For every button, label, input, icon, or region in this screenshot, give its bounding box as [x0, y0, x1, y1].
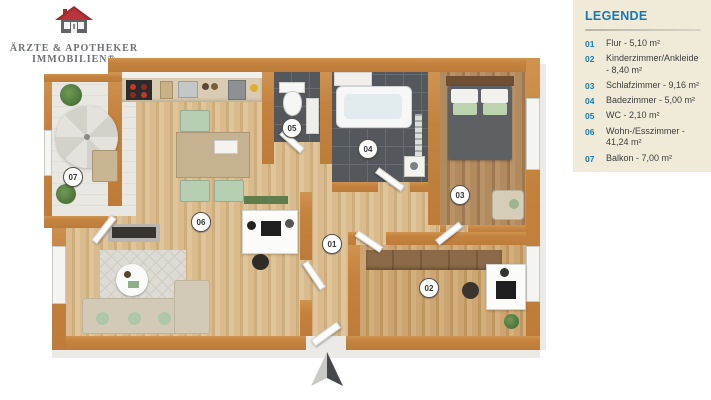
legend-item-06: 06 Wohn-/Esszimmer - 41,24 m²	[585, 126, 701, 149]
bed	[448, 86, 512, 160]
wall-hall-living-lower	[300, 300, 312, 336]
wall-kids-top	[386, 232, 526, 245]
legend-item-01: 01 Flur - 5,10 m²	[585, 38, 701, 50]
wall-bath-bottom-right	[410, 182, 428, 192]
bowl-icon	[202, 83, 209, 90]
dining-table	[176, 132, 250, 178]
wall-wc-bath	[320, 72, 332, 164]
legend-item-04: 04 Badezimmer - 5,00 m²	[585, 95, 701, 107]
wall-bath-bottom-left	[332, 182, 378, 192]
room-badge-07: 07	[63, 167, 83, 187]
wall-bath-bedroom	[428, 72, 440, 225]
coffee-table	[116, 264, 148, 296]
balcony-chair	[92, 150, 118, 182]
wall-bottom-right	[346, 336, 540, 350]
tv-icon	[112, 227, 156, 238]
window-living-left	[52, 246, 66, 304]
bedroom-armchair	[492, 190, 524, 220]
wall-wc-left	[262, 72, 274, 164]
room-badge-04: 04	[358, 139, 378, 159]
fruit-bowl-icon	[250, 84, 258, 92]
cutting-board-icon	[160, 81, 173, 99]
window-kids-right	[526, 246, 540, 302]
legend-title: LEGENDE	[585, 9, 701, 23]
bowl-icon	[211, 83, 218, 90]
kids-room-plant	[504, 314, 519, 329]
kids-office-chair	[462, 282, 479, 299]
room-badge-06: 06	[191, 212, 211, 232]
bed-headboard	[446, 76, 514, 86]
legend-item-05: 05 WC - 2,10 m²	[585, 110, 701, 122]
toilet-icon	[283, 91, 302, 116]
wall-bottom-left	[52, 336, 306, 350]
stove-icon	[126, 80, 152, 100]
wall-top	[108, 58, 540, 72]
floorplan-page: ÄRZTE & APOTHEKER IMMOBILIEN® LEGENDE 01…	[0, 0, 711, 400]
wall-hall-kids	[348, 245, 360, 336]
table-tray	[214, 140, 238, 154]
bottom-slab	[52, 350, 540, 358]
sofa-cushion	[128, 312, 141, 325]
wall-balcony-bottom	[44, 216, 108, 228]
kitchen-sink-icon	[178, 81, 198, 98]
agency-logo: ÄRZTE & APOTHEKER IMMOBILIEN®	[6, 6, 142, 65]
window-balcony-left	[44, 130, 52, 176]
dining-chair	[180, 110, 210, 132]
bath-shelf	[334, 72, 372, 86]
balcony-plant	[56, 184, 76, 204]
kids-desk	[486, 264, 526, 310]
house-logo-icon	[53, 6, 95, 36]
wall-hall-living-upper	[300, 192, 312, 260]
right-slab	[540, 64, 546, 350]
coffee-machine-icon	[228, 80, 246, 100]
window-bedroom-right	[526, 98, 540, 170]
wall-planter	[244, 196, 288, 204]
legend-divider	[585, 29, 701, 31]
legend-item-02: 02 Kinderzimmer/Ankleide - 8,40 m²	[585, 53, 701, 76]
sofa-cushion	[96, 312, 109, 325]
legend-item-07: 07 Balkon - 7,00 m²	[585, 153, 701, 165]
legend-panel: LEGENDE 01 Flur - 5,10 m² 02 Kinderzimme…	[573, 0, 711, 172]
dining-chair	[214, 180, 244, 202]
room-badge-05: 05	[282, 118, 302, 138]
sofa-cushion	[158, 312, 171, 325]
logo-text-line1: ÄRZTE & APOTHEKER	[6, 43, 142, 54]
room-badge-02: 02	[419, 278, 439, 298]
balcony-plant	[60, 84, 82, 106]
wardrobe	[366, 250, 502, 270]
washing-machine-icon	[404, 156, 425, 177]
dining-chair	[180, 180, 210, 202]
legend-item-03: 03 Schlafzimmer - 9,16 m²	[585, 80, 701, 92]
room-badge-03: 03	[450, 185, 470, 205]
north-arrow-icon	[310, 352, 344, 388]
bathtub-icon	[336, 86, 412, 128]
room-badge-01: 01	[322, 234, 342, 254]
living-desk	[242, 210, 298, 254]
sofa-chaise	[174, 280, 210, 334]
wc-cabinet	[306, 98, 319, 134]
office-chair	[252, 254, 269, 270]
